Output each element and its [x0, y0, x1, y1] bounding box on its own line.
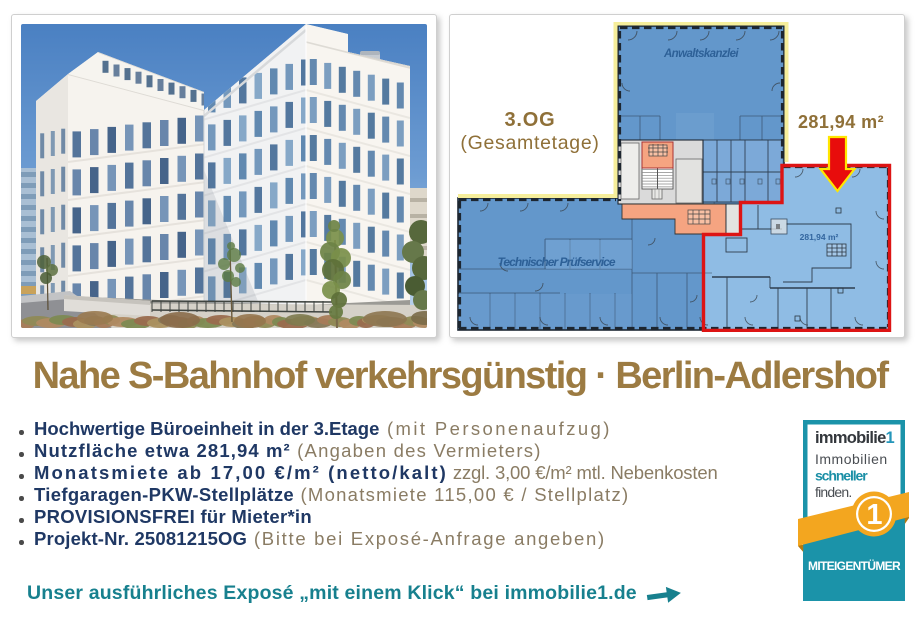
- svg-text:3.OG: 3.OG: [505, 109, 556, 131]
- svg-text:finden.: finden.: [815, 484, 851, 500]
- svg-text:Immobilien: Immobilien: [815, 451, 888, 467]
- svg-text:281,94 m²: 281,94 m²: [798, 112, 884, 132]
- svg-text:MITEIGENTÜMER: MITEIGENTÜMER: [808, 558, 901, 573]
- svg-text:281,94 m²: 281,94 m²: [800, 232, 839, 242]
- svg-text:schneller: schneller: [815, 468, 868, 484]
- svg-text:1: 1: [866, 499, 882, 531]
- svg-text:Technischer Prüfservice: Technischer Prüfservice: [497, 255, 615, 269]
- svg-text:(Gesamtetage): (Gesamtetage): [460, 132, 599, 154]
- svg-text:immobilie1: immobilie1: [815, 429, 895, 447]
- svg-text:Anwaltskanzlei: Anwaltskanzlei: [663, 48, 739, 60]
